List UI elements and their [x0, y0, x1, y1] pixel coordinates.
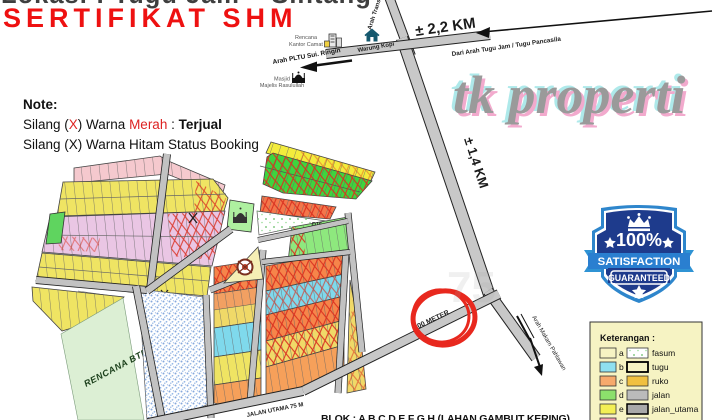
svg-text:e: e: [619, 404, 624, 414]
svg-text:b: b: [619, 362, 624, 372]
svg-text:jalan_utama: jalan_utama: [651, 404, 699, 414]
svg-text:100%: 100%: [616, 230, 662, 250]
svg-text:fasum: fasum: [652, 348, 675, 358]
svg-text:Arah Makam Pahlawan: Arah Makam Pahlawan: [530, 315, 566, 372]
svg-text:a: a: [619, 348, 624, 358]
svg-text:SATISFACTION: SATISFACTION: [598, 256, 681, 268]
svg-text:d: d: [619, 390, 624, 400]
svg-text:± 1,4 KM: ± 1,4 KM: [461, 135, 492, 190]
svg-text:ruko: ruko: [652, 376, 669, 386]
svg-text:Masjid: Masjid: [274, 77, 290, 83]
svg-text:75: 75: [447, 263, 496, 312]
svg-text:Keterangan :: Keterangan :: [600, 333, 655, 343]
svg-text:Majelis Rasulullah: Majelis Rasulullah: [260, 83, 304, 89]
svg-text:Rencana: Rencana: [295, 35, 318, 41]
svg-text:GUARANTEED: GUARANTEED: [608, 273, 670, 283]
svg-text:Kantor Camat: Kantor Camat: [289, 42, 323, 48]
svg-text:tugu: tugu: [652, 362, 669, 372]
svg-text:jalan: jalan: [651, 390, 670, 400]
